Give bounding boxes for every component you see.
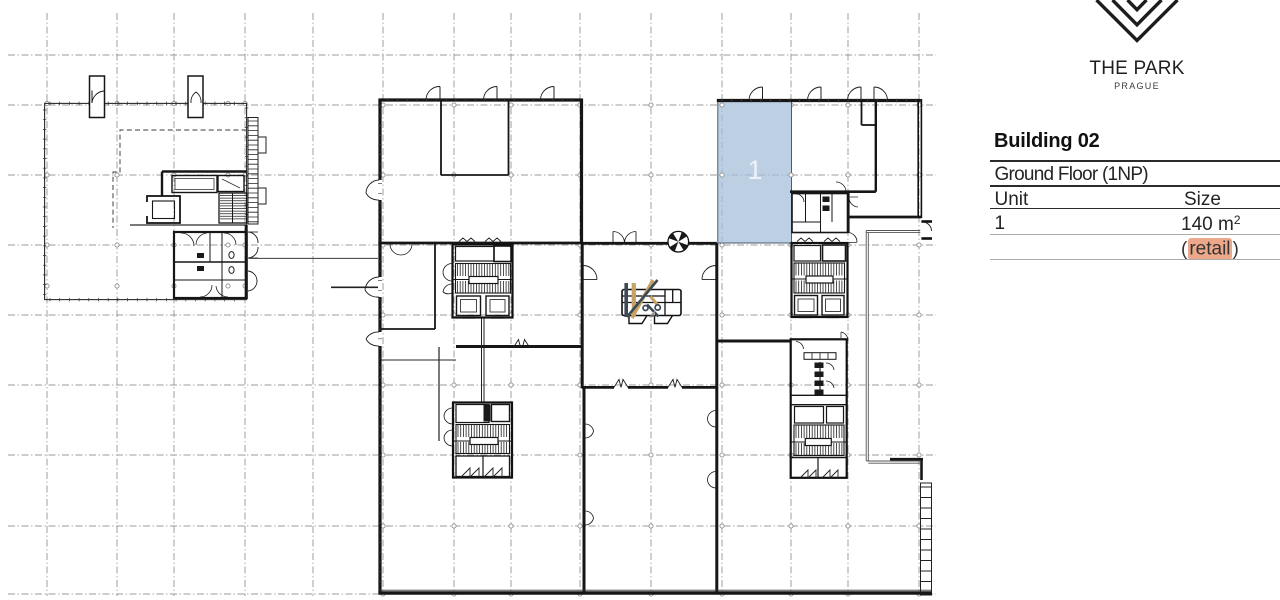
svg-text:1: 1: [747, 155, 762, 185]
